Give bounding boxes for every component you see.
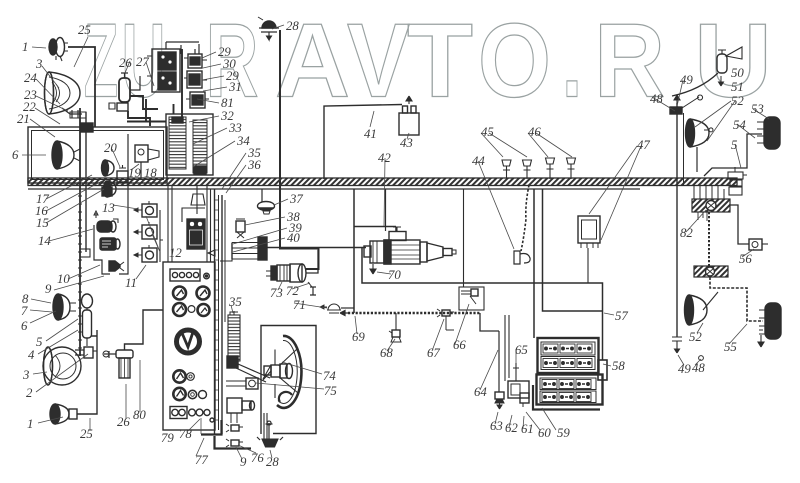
svg-text:O: O bbox=[478, 3, 551, 120]
svg-text:40: 40 bbox=[287, 231, 300, 245]
svg-text:6: 6 bbox=[12, 148, 19, 162]
svg-text:63: 63 bbox=[490, 419, 503, 433]
svg-text:54: 54 bbox=[733, 118, 746, 132]
svg-text:25: 25 bbox=[80, 427, 93, 441]
svg-text:28: 28 bbox=[266, 455, 279, 469]
svg-text:48: 48 bbox=[650, 92, 663, 106]
svg-text:45: 45 bbox=[481, 125, 494, 139]
svg-text:24: 24 bbox=[24, 71, 37, 85]
svg-text:73: 73 bbox=[270, 286, 283, 300]
svg-text:26: 26 bbox=[119, 56, 132, 70]
svg-text:79: 79 bbox=[161, 431, 174, 445]
svg-text:1: 1 bbox=[22, 40, 28, 54]
svg-text:52: 52 bbox=[731, 94, 744, 108]
svg-text:66: 66 bbox=[453, 338, 466, 352]
svg-text:64: 64 bbox=[474, 385, 487, 399]
svg-text:57: 57 bbox=[615, 309, 628, 323]
svg-text:7: 7 bbox=[21, 304, 28, 318]
svg-text:60: 60 bbox=[538, 426, 551, 440]
svg-text:51: 51 bbox=[731, 80, 744, 94]
svg-text:41: 41 bbox=[364, 127, 377, 141]
svg-text:28: 28 bbox=[286, 19, 299, 33]
svg-text:72: 72 bbox=[286, 284, 299, 298]
svg-text:78: 78 bbox=[179, 427, 192, 441]
svg-text:43: 43 bbox=[400, 136, 413, 150]
svg-text:5: 5 bbox=[731, 138, 738, 152]
svg-text:82: 82 bbox=[680, 226, 693, 240]
svg-text:46: 46 bbox=[528, 125, 541, 139]
svg-text:55: 55 bbox=[724, 340, 737, 354]
svg-text:4: 4 bbox=[28, 348, 35, 362]
svg-text:52: 52 bbox=[689, 330, 702, 344]
svg-text:T: T bbox=[407, 3, 473, 120]
svg-text:11: 11 bbox=[125, 276, 137, 290]
svg-text:35: 35 bbox=[228, 295, 242, 309]
svg-text:75: 75 bbox=[324, 384, 337, 398]
svg-text:68: 68 bbox=[380, 346, 393, 360]
svg-text:70: 70 bbox=[388, 268, 401, 282]
svg-text:62: 62 bbox=[505, 421, 518, 435]
svg-text:37: 37 bbox=[289, 192, 303, 206]
svg-text:44: 44 bbox=[472, 154, 485, 168]
svg-text:48: 48 bbox=[692, 361, 705, 375]
svg-text:27: 27 bbox=[136, 55, 149, 69]
svg-text:.: . bbox=[562, 3, 582, 120]
svg-text:76: 76 bbox=[251, 451, 264, 465]
svg-text:V: V bbox=[347, 3, 410, 120]
svg-text:10: 10 bbox=[57, 272, 70, 286]
svg-text:21: 21 bbox=[17, 112, 30, 126]
svg-text:53: 53 bbox=[751, 102, 764, 116]
svg-text:26: 26 bbox=[117, 415, 130, 429]
svg-text:15: 15 bbox=[36, 216, 49, 230]
svg-text:14: 14 bbox=[38, 234, 51, 248]
svg-text:6: 6 bbox=[21, 319, 28, 333]
svg-text:61: 61 bbox=[521, 422, 534, 436]
svg-text:49: 49 bbox=[678, 362, 691, 376]
svg-text:59: 59 bbox=[557, 426, 570, 440]
svg-text:58: 58 bbox=[612, 359, 625, 373]
svg-text:49: 49 bbox=[680, 73, 693, 87]
svg-text:77: 77 bbox=[195, 453, 208, 467]
svg-text:18: 18 bbox=[144, 166, 157, 180]
svg-text:65: 65 bbox=[515, 343, 528, 357]
svg-text:2: 2 bbox=[26, 386, 33, 400]
svg-text:Z: Z bbox=[84, 3, 118, 120]
svg-text:5: 5 bbox=[36, 335, 43, 349]
svg-text:71: 71 bbox=[293, 298, 306, 312]
svg-text:31: 31 bbox=[228, 80, 242, 94]
svg-text:3: 3 bbox=[35, 57, 42, 71]
svg-text:47: 47 bbox=[637, 138, 650, 152]
svg-text:56: 56 bbox=[739, 252, 752, 266]
svg-text:9: 9 bbox=[45, 282, 52, 296]
svg-text:19: 19 bbox=[128, 166, 141, 180]
svg-text:20: 20 bbox=[104, 141, 117, 155]
svg-text:67: 67 bbox=[427, 346, 440, 360]
svg-text:69: 69 bbox=[352, 330, 365, 344]
svg-text:80: 80 bbox=[133, 408, 146, 422]
svg-text:42: 42 bbox=[378, 151, 391, 165]
svg-text:33: 33 bbox=[228, 121, 242, 135]
svg-text:74: 74 bbox=[323, 369, 336, 383]
svg-text:50: 50 bbox=[731, 66, 744, 80]
svg-text:36: 36 bbox=[247, 158, 261, 172]
svg-text:13: 13 bbox=[102, 201, 115, 215]
svg-text:25: 25 bbox=[78, 23, 91, 37]
svg-text:12: 12 bbox=[169, 246, 182, 260]
svg-text:3: 3 bbox=[22, 368, 29, 382]
svg-text:81: 81 bbox=[221, 96, 234, 110]
svg-text:9: 9 bbox=[240, 455, 247, 469]
svg-text:1: 1 bbox=[27, 417, 33, 431]
